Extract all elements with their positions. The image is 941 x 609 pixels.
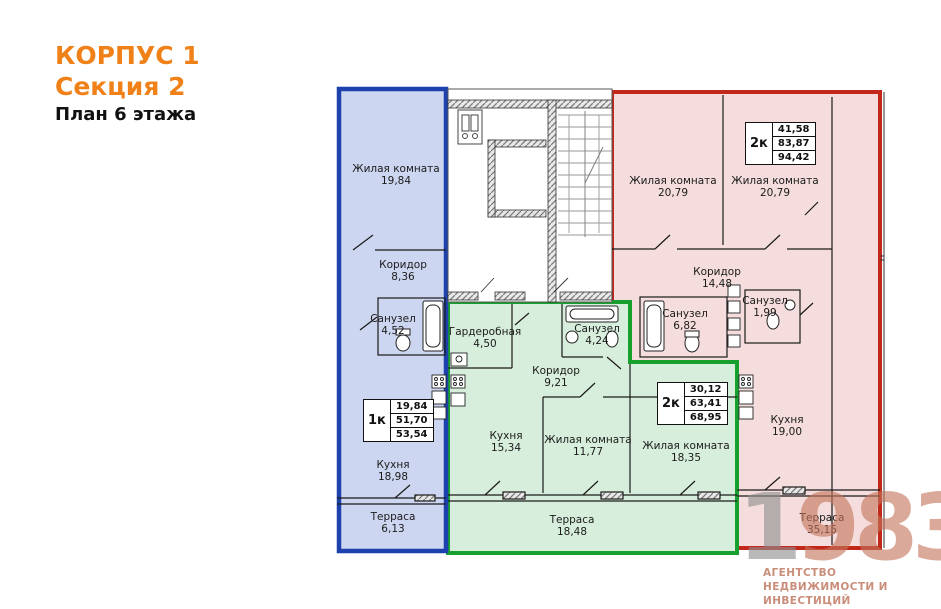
room-label: Кухня 18,98 — [376, 459, 409, 483]
area-total: 68,95 — [685, 411, 727, 424]
room-label: Жилая комната 18,35 — [642, 440, 729, 464]
room-label: Жилая комната 20,79 — [731, 175, 818, 199]
room-label: Коридор 8,36 — [379, 259, 427, 283]
stairwell — [448, 89, 612, 302]
apartment-info-box-red: 2к 41,58 83,87 94,42 — [745, 122, 816, 165]
floor-plan-title: План 6 этажа — [55, 103, 200, 127]
area-net: 51,70 — [391, 414, 433, 428]
building-title: КОРПУС 1 — [55, 40, 200, 71]
section-title: Секция 2 — [55, 71, 200, 102]
green-kitchen-appliances-icon — [451, 353, 467, 406]
area-net: 83,87 — [773, 137, 815, 151]
apartment-info-box-blue: 1к 19,84 51,70 53,54 — [363, 399, 434, 442]
blue-kitchen-appliances-icon — [432, 375, 446, 419]
room-label: Санузел 4,52 — [370, 313, 416, 337]
red-bathtub-icon — [644, 301, 664, 351]
area-total: 53,54 — [391, 428, 433, 441]
room-label: Санузел 6,82 — [662, 308, 708, 332]
room-label: Санузел 4,24 — [574, 323, 620, 347]
room-label: Коридор 14,48 — [693, 266, 741, 290]
agency-tagline: АГЕНТСТВО НЕДВИЖИМОСТИ И ИНВЕСТИЦИЙ — [763, 566, 941, 609]
blue-bathtub-icon — [423, 301, 443, 351]
area-total: 94,42 — [773, 151, 815, 164]
area-net: 63,41 — [685, 397, 727, 411]
page-header: КОРПУС 1 Секция 2 План 6 этажа — [55, 40, 200, 127]
room-label: Жилая комната 20,79 — [629, 175, 716, 199]
room-label: Санузел 1,99 — [742, 295, 788, 319]
room-label: Кухня 19,00 — [770, 414, 803, 438]
room-label: Кухня 15,34 — [489, 430, 522, 454]
area-living: 19,84 — [391, 400, 433, 414]
room-label: Терраса 6,13 — [371, 511, 416, 535]
apartment-type: 1к — [364, 400, 390, 441]
green-bathtub-icon — [566, 306, 618, 322]
area-living: 41,58 — [773, 123, 815, 137]
apartment-type: 2к — [746, 123, 772, 164]
area-living: 30,12 — [685, 383, 727, 397]
room-label: Жилая комната 19,84 — [352, 163, 439, 187]
room-label: Терраса 18,48 — [550, 514, 595, 538]
room-label: Коридор 9,21 — [532, 365, 580, 389]
room-label: Жилая комната 11,77 — [544, 434, 631, 458]
agency-logo: 1983 — [738, 487, 941, 570]
apartment-info-box-green: 2к 30,12 63,41 68,95 — [657, 382, 728, 425]
room-label: Гардеробная 4,50 — [449, 326, 521, 350]
apartment-type: 2к — [658, 383, 684, 424]
